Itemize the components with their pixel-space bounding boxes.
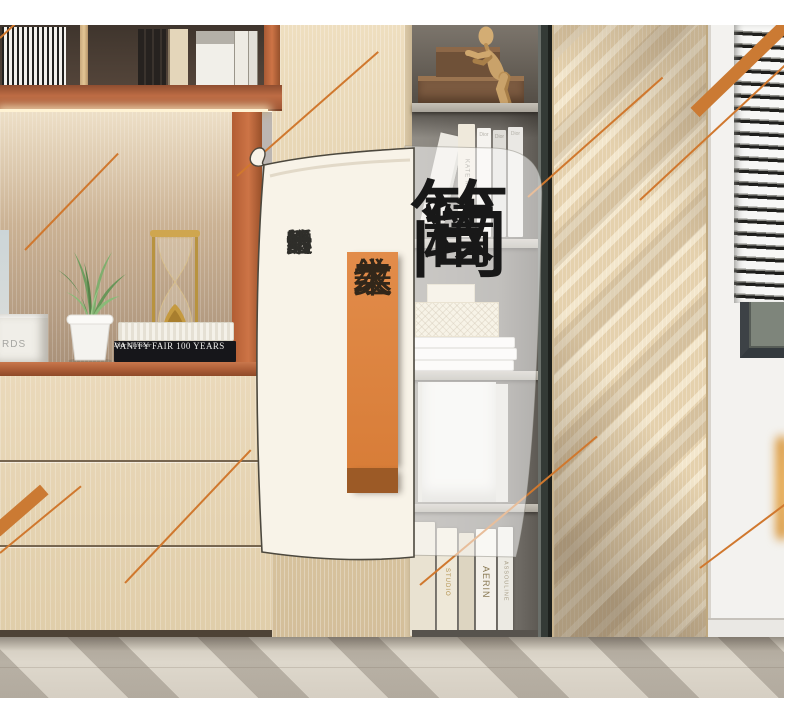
slogan-vertical-text: 给 心 灵 一 个 温 暖 的 场 所 (282, 229, 316, 230)
cabinet-bottom-gap (0, 630, 272, 637)
ribbon-base-block (347, 468, 398, 493)
shelf-board (412, 103, 538, 112)
ribbon-char: 美 (353, 259, 393, 299)
wooden-mannequin (455, 25, 540, 107)
vanity-fair-book: Dior Glamour VANITY FAIR 100 YEARS (114, 341, 236, 362)
corner-shadow (554, 25, 706, 637)
decor-box: RDS (0, 314, 48, 362)
terracotta-shelf-board (0, 85, 282, 111)
hourglass (146, 230, 204, 336)
book-title: VANITY FAIR 100 YEARS (114, 342, 225, 351)
wood-floor (0, 637, 786, 700)
shelf-frame-edge (264, 25, 280, 87)
drawer-seam (0, 460, 272, 462)
drawer-front-panel (0, 376, 272, 637)
striped-book-set (2, 27, 66, 85)
beige-book-spine (168, 29, 188, 87)
right-margin (784, 0, 790, 719)
window-frame (740, 302, 786, 358)
top-margin (0, 0, 790, 25)
bottom-margin (0, 698, 790, 719)
white-magazine-stack (196, 31, 258, 87)
shelf-interior-bottom (412, 630, 538, 637)
top-shelf-row (0, 25, 280, 87)
scroll-curl (250, 148, 265, 166)
decor-box-label: RDS (2, 339, 26, 350)
wardrobe-door-right (552, 25, 708, 637)
headline-char: 致 (422, 194, 496, 268)
ribbon-wood-grain-beauty: 木 纹 之 美 (347, 252, 398, 468)
shelf-divider (80, 25, 88, 87)
dark-book-spines (138, 29, 166, 87)
slogan-char: 所 (286, 229, 313, 258)
promo-banner: RDS Dior Glamour VANITY FAIR 100 YEARS (0, 0, 790, 719)
drawer-seam (0, 545, 272, 547)
patterned-book (118, 322, 234, 341)
